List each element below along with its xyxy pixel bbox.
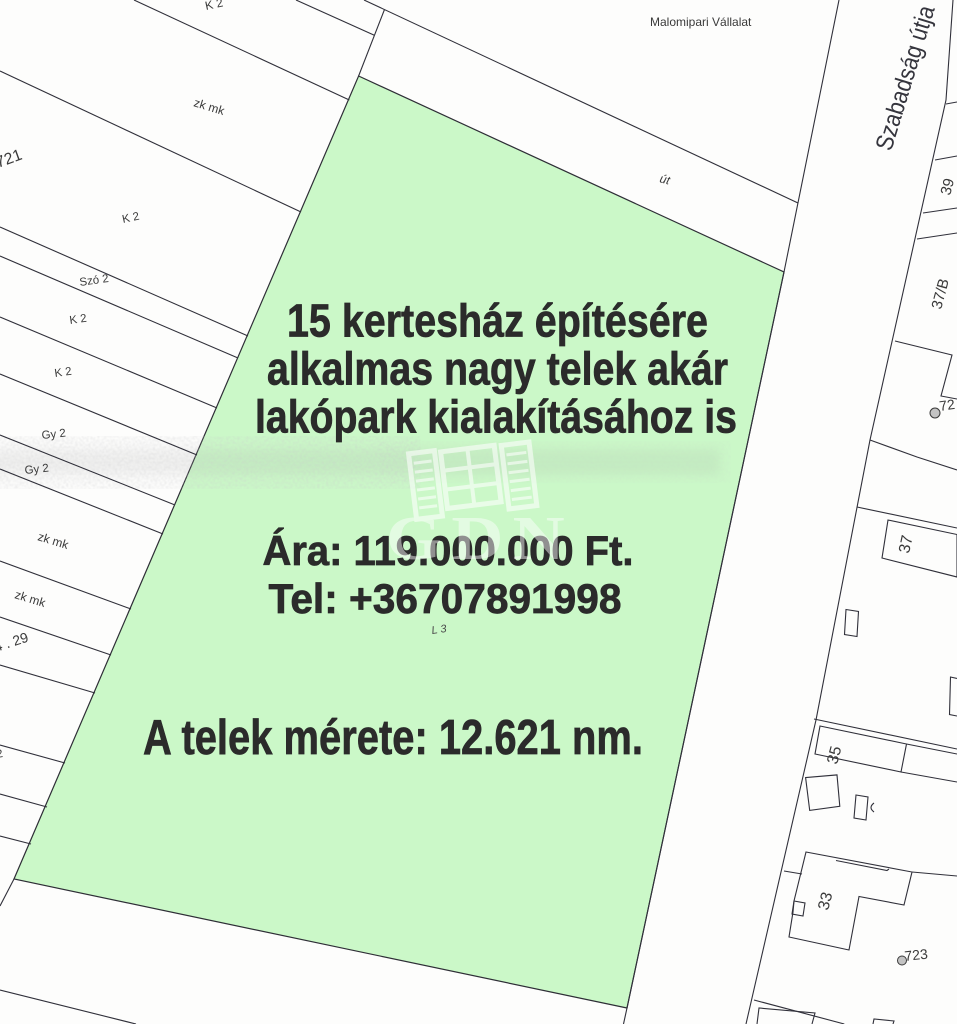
svg-text:K 2: K 2 — [54, 366, 73, 380]
svg-text:lakópark kialakításához is: lakópark kialakításához is — [255, 391, 737, 443]
svg-text:72: 72 — [938, 396, 956, 414]
svg-text:alkalmas nagy telek akár: alkalmas nagy telek akár — [267, 343, 728, 395]
svg-text:15 kertesház építésére: 15 kertesház építésére — [287, 295, 708, 347]
svg-text:Malomipari Vállalat: Malomipari Vállalat — [650, 15, 752, 29]
svg-text:A telek mérete: 12.621 nm.: A telek mérete: 12.621 nm. — [143, 711, 643, 765]
svg-text:K 2: K 2 — [69, 313, 88, 327]
svg-text:GDN: GDN — [386, 505, 574, 573]
svg-text:L 3: L 3 — [431, 623, 448, 637]
svg-text:37: 37 — [896, 534, 916, 555]
svg-text:Gy 2: Gy 2 — [41, 428, 66, 442]
svg-text:723: 723 — [904, 946, 929, 964]
svg-text:Gy 2: Gy 2 — [24, 463, 49, 477]
svg-text:Tel: +36707891998: Tel: +36707891998 — [269, 575, 622, 622]
